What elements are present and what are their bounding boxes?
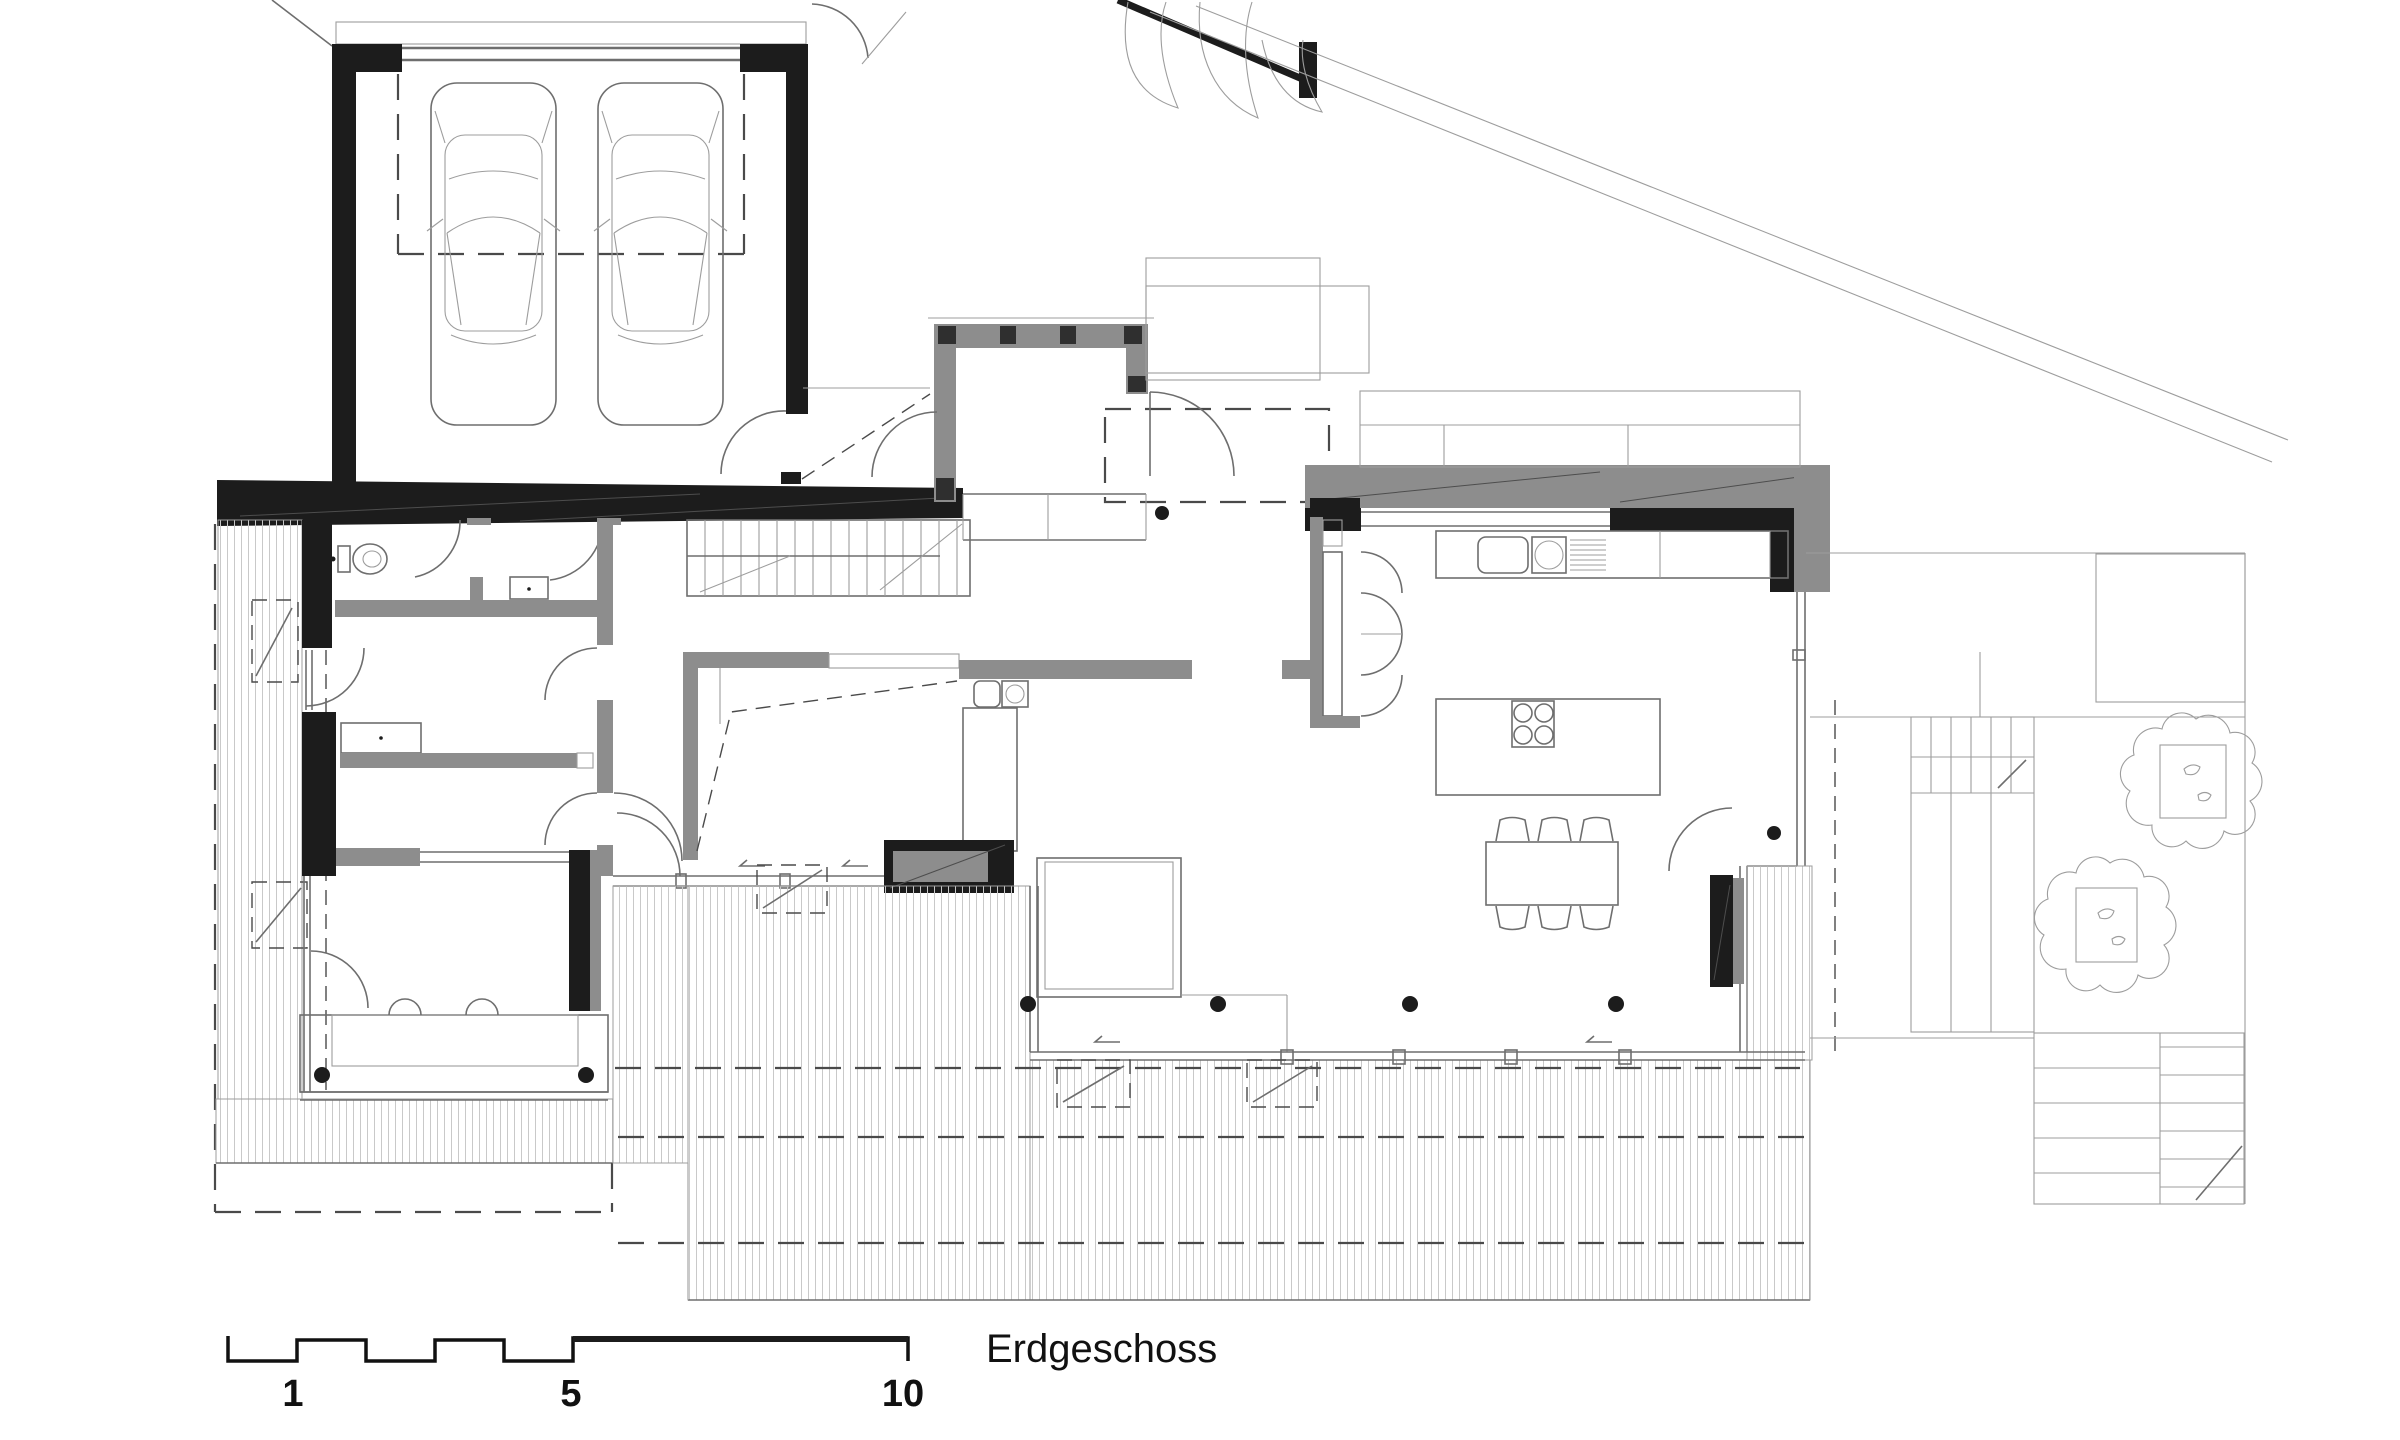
column-icon [1155,506,1169,520]
door-swing [614,793,682,861]
dining [1486,818,1744,988]
planter-box [884,840,1014,893]
living-south-glass [1030,1036,1805,1064]
entry-door-swing [1150,392,1234,476]
east-garden [1806,553,2262,1204]
washbasin-icon [510,577,548,599]
wardrobe-wall [683,652,959,860]
site-boundary [272,0,2288,462]
door-swing [550,520,603,580]
column-icon [578,1067,594,1083]
main-staircase [687,520,970,596]
south-deck [613,700,1835,1300]
column-icon [1608,996,1624,1012]
kitchen-sink-icon [974,681,1028,707]
corridor-glass-wall [613,860,884,888]
bench [300,999,608,1092]
southwest-deck [216,1099,613,1163]
tree-icon [2034,857,2176,993]
column-icon [1767,826,1781,840]
garage-east-wall [786,44,808,414]
floorplan-title: Erdgeschoss [986,1327,1217,1371]
door-swing [872,412,937,477]
porch [300,850,608,1100]
folding-partition [1310,498,1402,728]
tree-icon [2120,713,2262,849]
scale-label-1: 1 [282,1373,303,1415]
door-swing [545,793,597,845]
exterior-stair-south [2034,1033,2244,1204]
canopy-outline [1105,409,1329,502]
cooktop-icon [1512,701,1554,747]
scale-label-10: 10 [882,1373,924,1415]
door-swing [306,648,364,706]
chimney [569,850,601,1011]
column-icon [1402,996,1418,1012]
upper-floor-outline [1146,258,1320,380]
sunken-lounge [1037,858,1287,1052]
floorplan-canvas: 1 5 10 Erdgeschoss [0,0,2400,1440]
kitchen-sink-icon [1478,537,1528,573]
upper-floor-outline [1146,286,1369,373]
door-swing [311,951,368,1008]
scale-label-5: 5 [560,1373,581,1415]
gate-door-swing [812,4,906,64]
drainer [1570,540,1606,570]
column-icon [1210,996,1226,1012]
garage-side-door-swing [721,411,801,484]
kitchen-window [1361,512,1610,526]
east-deck-strip [1747,866,1812,1060]
chair-icon [1496,818,1613,930]
hall [613,520,1311,893]
exterior-stair-north [1911,717,2034,1032]
door-swing [1669,808,1732,871]
kitchen-island [1436,699,1660,795]
fireplace [1710,875,1744,987]
parking-stall-outline [398,74,744,254]
upper-floor-outline [1360,391,1800,467]
upper-terrace-outline [2096,554,2245,702]
dining-table [1486,842,1618,905]
garage [332,4,906,484]
west-wing [302,520,682,876]
column-icon [314,1067,330,1083]
garage-west-wall [332,44,356,484]
door-swing [545,648,597,700]
toilet-icon [331,544,388,574]
kitchen-counter [1436,531,1788,578]
garage-door [402,48,740,60]
door-swing [415,520,460,577]
column-icon [1020,996,1036,1012]
kitchen-peninsula [963,708,1017,851]
scale-bar: 1 5 10 [228,1336,924,1415]
wardrobe [341,723,421,753]
